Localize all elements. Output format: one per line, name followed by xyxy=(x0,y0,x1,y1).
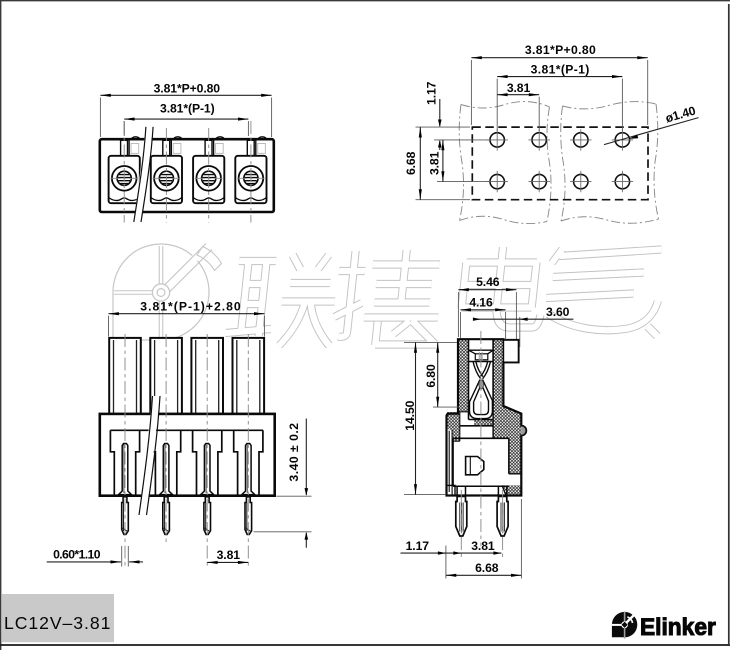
svg-text:3.81*(P-1)+2.80: 3.81*(P-1)+2.80 xyxy=(140,299,241,313)
svg-text:3.40 ± 0.2: 3.40 ± 0.2 xyxy=(287,422,301,481)
svg-text:4.16: 4.16 xyxy=(469,295,493,309)
svg-text:Elinker: Elinker xyxy=(640,613,716,640)
svg-text:3.81: 3.81 xyxy=(428,151,442,175)
svg-text:3.81*(P-1): 3.81*(P-1) xyxy=(531,63,590,77)
svg-text:LC12V–3.81: LC12V–3.81 xyxy=(4,613,111,633)
svg-text:1.17: 1.17 xyxy=(425,81,439,105)
svg-text:3.81: 3.81 xyxy=(217,548,241,562)
svg-text:6.80: 6.80 xyxy=(424,364,438,388)
svg-text:3.81*P+0.80: 3.81*P+0.80 xyxy=(525,43,596,57)
svg-text:6.68: 6.68 xyxy=(475,561,499,575)
svg-text:6.68: 6.68 xyxy=(404,151,418,175)
svg-text:5.46: 5.46 xyxy=(476,275,500,289)
svg-text:14.50: 14.50 xyxy=(403,400,417,430)
svg-text:1.17: 1.17 xyxy=(406,539,430,553)
svg-text:3.60: 3.60 xyxy=(546,305,570,319)
svg-text:3.81*P+0.80: 3.81*P+0.80 xyxy=(154,82,221,96)
svg-text:3.81: 3.81 xyxy=(471,539,495,553)
svg-text:3.81: 3.81 xyxy=(507,81,531,95)
svg-text:0.60*1.10: 0.60*1.10 xyxy=(53,548,101,562)
svg-text:3.81*(P-1): 3.81*(P-1) xyxy=(160,102,215,116)
